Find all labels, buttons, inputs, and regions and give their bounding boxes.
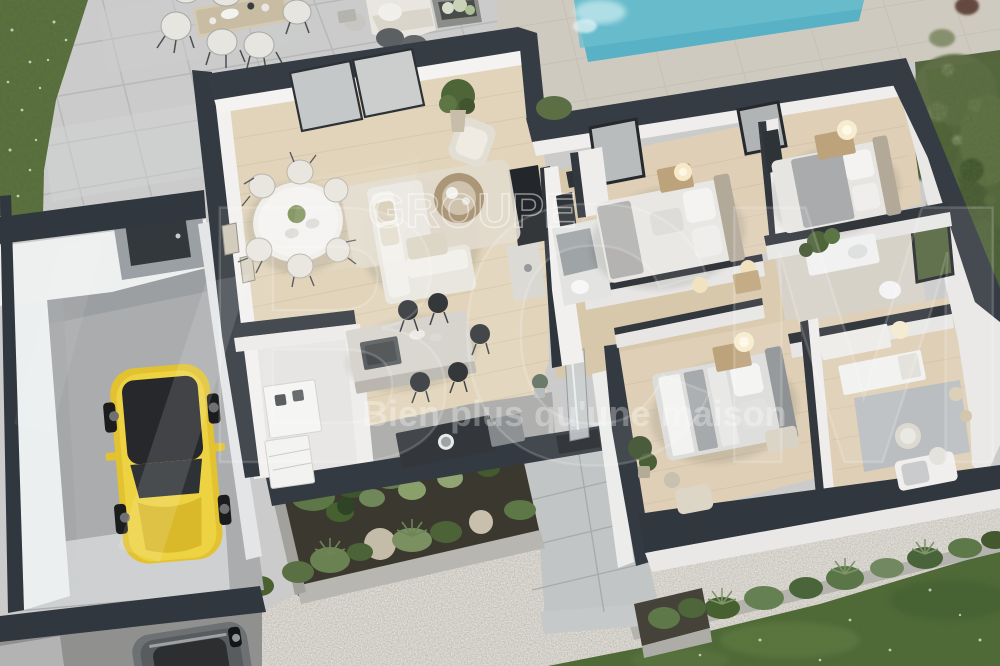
svg-text:BCM: BCM: [195, 128, 1000, 541]
svg-text:Bien plus qu'une maison: Bien plus qu'une maison: [362, 393, 787, 434]
svg-text:GROUPE: GROUPE: [368, 185, 576, 238]
